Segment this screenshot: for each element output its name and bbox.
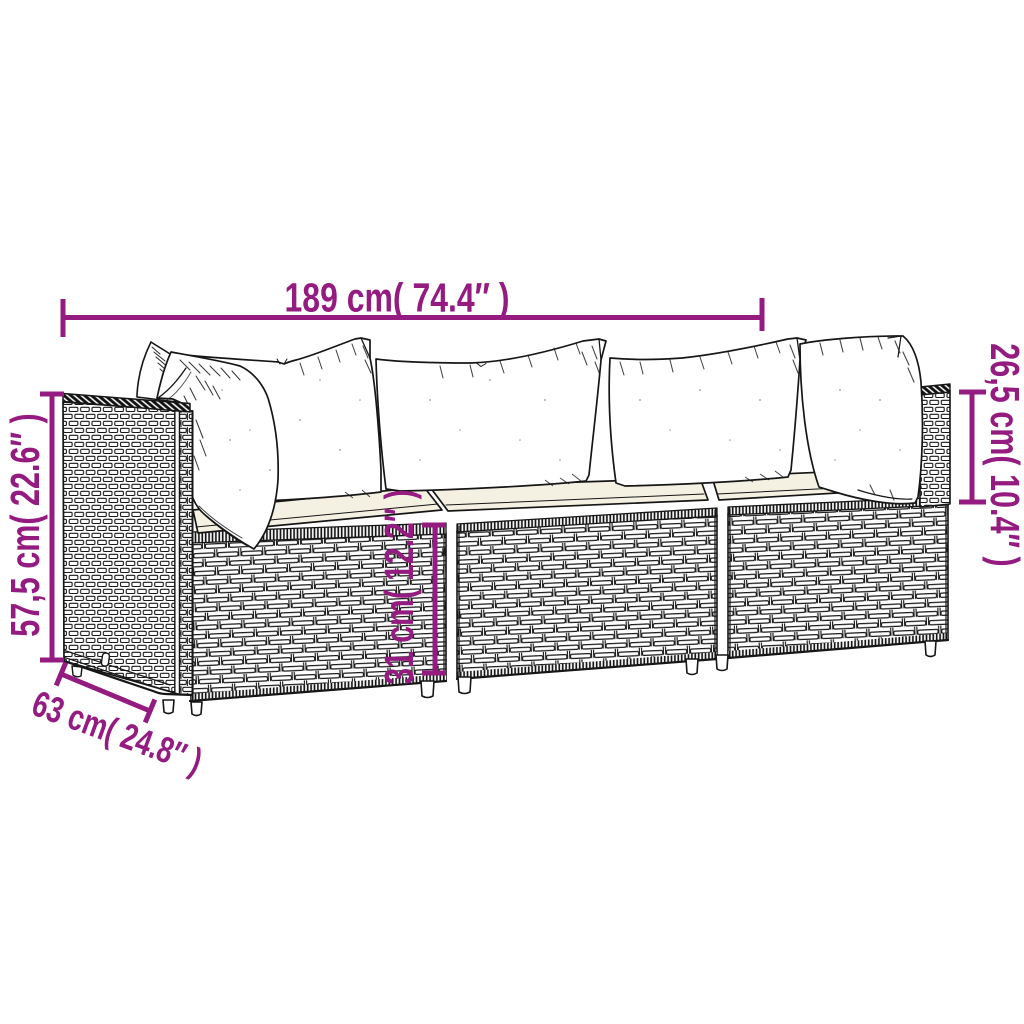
svg-text:57,5 cm( 22.6″ ): 57,5 cm( 22.6″ ) (2, 413, 48, 636)
svg-text:189 cm( 74.4″ ): 189 cm( 74.4″ ) (285, 275, 510, 321)
svg-text:31 cm( 12.2″ ): 31 cm( 12.2″ ) (375, 489, 422, 684)
svg-text:26,5 cm( 10.4″ ): 26,5 cm( 10.4″ ) (982, 343, 1024, 566)
